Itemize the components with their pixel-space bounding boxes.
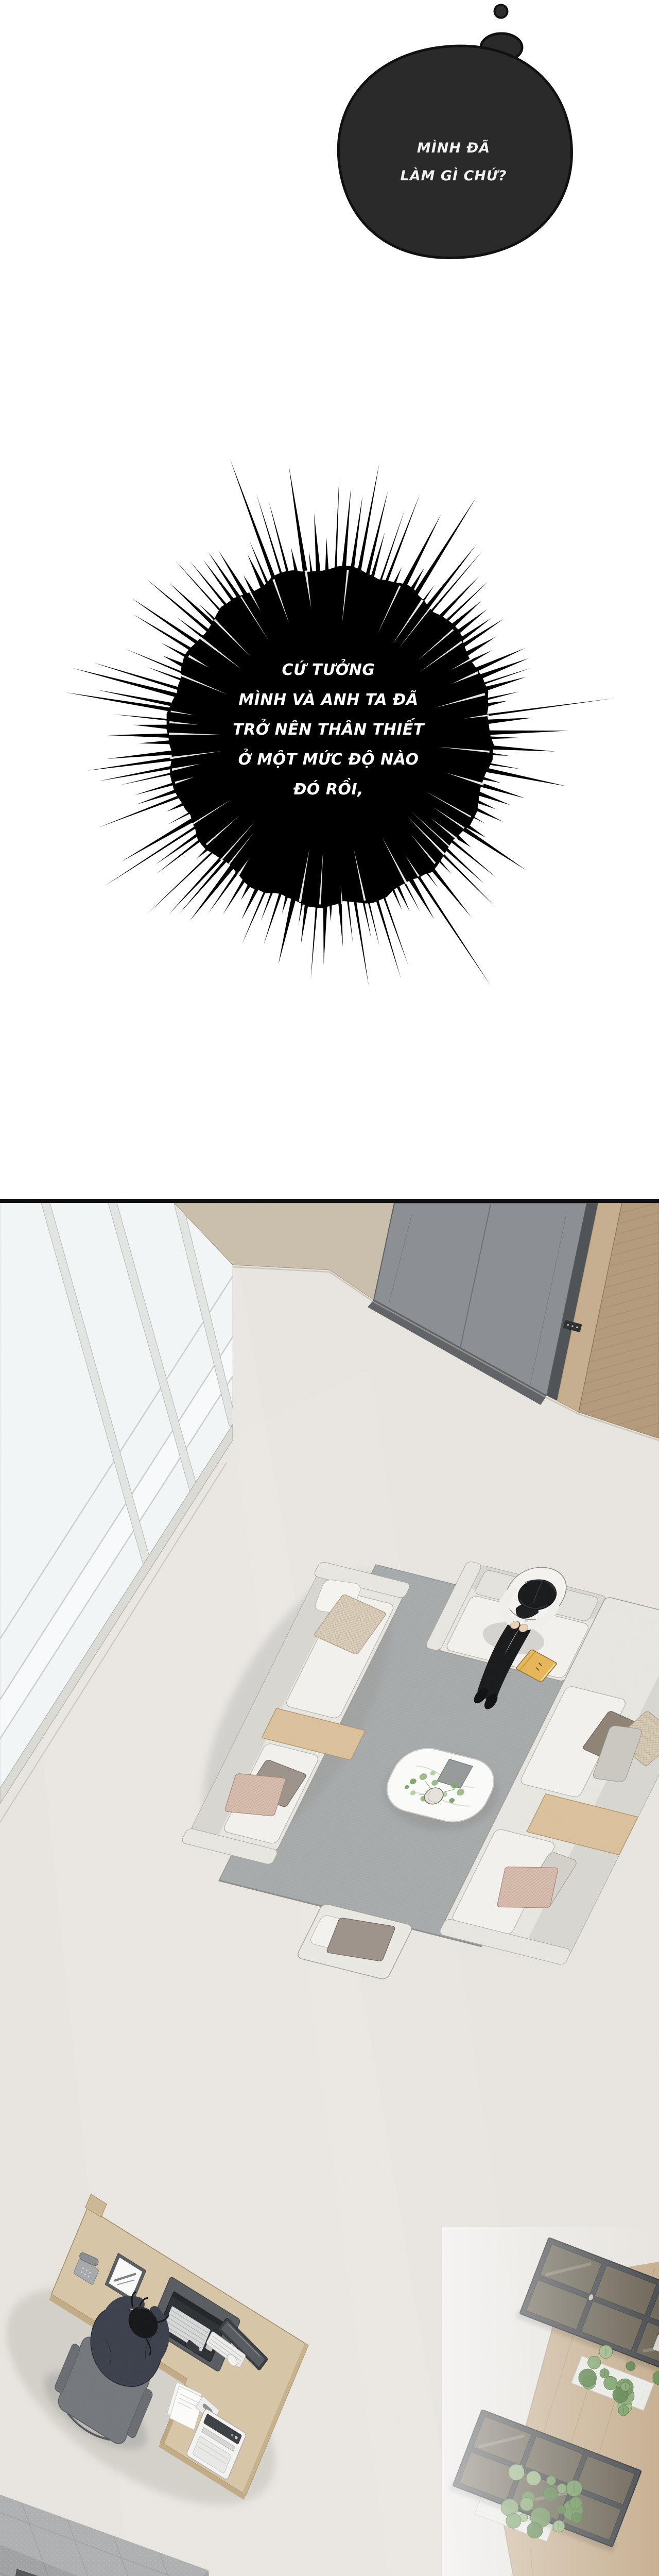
burst-line-1: CỨ TƯỞNG [282,658,375,679]
burst-needle [441,582,489,627]
burst-needle [346,897,353,943]
burst-needle [413,870,491,986]
burst-bubble: CỨ TƯỞNG MÌNH VÀ ANH TA ĐÃ TRỞ NÊN THÂN … [65,459,614,987]
burst-needle [98,793,186,828]
burst-needle [483,718,533,725]
dialogue-section: MÌNH ĐÃ LÀM GÌ CHỨ? CỨ TƯỞNG MÌNH VÀ ANH… [0,0,659,1199]
burst-needle [480,767,568,787]
burst-needle [189,862,236,921]
burst-needle [223,873,250,914]
burst-needle [107,733,175,738]
burst-needle [341,488,351,577]
burst-needle [325,538,329,576]
burst-needle [482,698,614,717]
burst-needle [425,860,472,918]
burst-needle [155,829,205,865]
burst-needle [146,579,212,635]
thought-line-1: MÌNH ĐÃ [417,140,490,156]
burst-needle [353,896,369,987]
burst-needle [334,478,339,576]
burst-needle [178,618,207,641]
burst-needle [384,494,420,587]
burst-needle [289,465,308,578]
thought-bubble: MÌNH ĐÃ LÀM GÌ CHỨ? [338,5,571,258]
burst-needle [398,514,441,595]
burst-needle [462,637,496,658]
burst-needle [179,857,229,913]
burst-needle [483,731,569,735]
burst-needle [484,736,522,739]
burst-needle [264,890,283,945]
burst-needle [107,750,176,759]
burst-needle [438,850,495,907]
thought-line-2: LÀM GÌ CHỨ? [401,167,507,184]
burst-needle [423,545,476,612]
burst-needle [314,513,321,576]
burst-line-5: ĐÓ RỒI, [293,777,363,799]
burst-needle [483,744,556,751]
paper-grain [0,1203,659,2576]
burst-needle [329,898,333,922]
burst-needle [133,725,176,730]
burst-line-3: TRỞ NÊN THÂN THIẾT [233,718,425,739]
burst-needle [122,816,197,862]
panel-border-top [0,1199,659,1203]
burst-needle [138,740,176,744]
burst-needle [338,897,343,947]
office-panel [0,1199,659,2576]
thought-dot [495,5,508,18]
burst-needle [378,510,405,585]
burst-needle [208,552,245,605]
burst-needle [311,897,319,980]
burst-needle [120,771,179,785]
burst-needle [279,893,298,965]
burst-needle [136,787,184,805]
burst-needle [457,823,527,870]
burst-needle [190,561,233,613]
burst-needle [169,583,218,629]
burst-line-2: MÌNH VÀ ANH TA ĐÃ [238,690,418,709]
burst-line-4: Ở MỘT MỨC ĐỘ NÀO [238,748,419,769]
burst-needle [157,834,208,873]
burst-needle [323,898,328,965]
